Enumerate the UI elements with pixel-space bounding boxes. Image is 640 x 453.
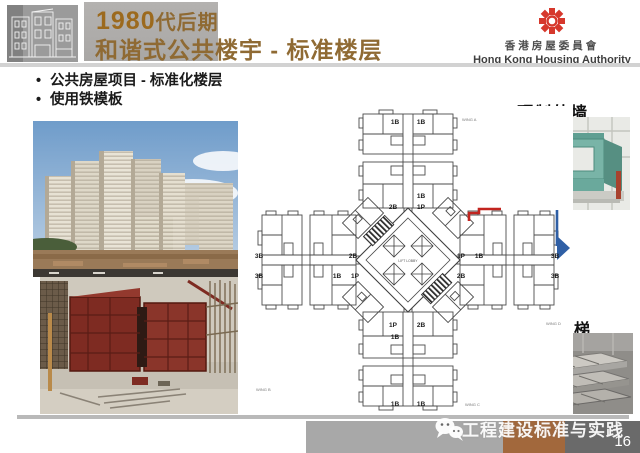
svg-text:1B: 1B [475, 253, 484, 260]
bullet-dot-icon: • [36, 72, 50, 91]
svg-text:WING D: WING D [546, 321, 561, 326]
wechat-icon [434, 416, 464, 442]
slide-title-line2: 和谐式公共楼宇 - 标准楼层 [95, 31, 382, 65]
steel-formwork-photo [40, 277, 238, 414]
svg-text:1B: 1B [391, 334, 400, 341]
page-number: 16 [565, 433, 639, 450]
svg-text:1B: 1B [417, 119, 426, 126]
bullet-item-1: •公共房屋项目 - 标准化楼层 [36, 72, 222, 91]
svg-text:3B: 3B [255, 253, 264, 260]
svg-text:1B: 1B [333, 273, 342, 280]
svg-text:2B: 2B [389, 204, 398, 211]
svg-text:1P: 1P [389, 322, 398, 329]
svg-text:2B: 2B [417, 322, 426, 329]
hkha-logo-block: 香港房屋委員會 Hong Kong Housing Authority [466, 6, 638, 66]
svg-text:1P: 1P [351, 273, 360, 280]
svg-text:1B: 1B [417, 193, 426, 200]
svg-text:1B: 1B [391, 401, 400, 408]
svg-text:2B: 2B [457, 273, 466, 280]
svg-text:1P: 1P [417, 204, 426, 211]
svg-text:WING A: WING A [462, 117, 477, 122]
svg-text:WING B: WING B [256, 387, 271, 392]
core-label: LIFT LOBBY [398, 259, 418, 263]
svg-text:3B: 3B [551, 273, 560, 280]
svg-text:WING C: WING C [465, 402, 480, 407]
svg-text:2B: 2B [349, 253, 358, 260]
bullet-text-2: 使用铁模板 [50, 92, 123, 108]
housing-estate-photo [33, 121, 238, 277]
bullet-item-2: •使用铁模板 [36, 91, 222, 110]
bullet-dot-icon: • [36, 91, 50, 110]
bullet-text-1: 公共房屋项目 - 标准化楼层 [50, 73, 222, 89]
harmony-block-floor-plan: LIFT LOBBY 1B 1B 1B 2B 1P 3B 2B 3B 1B 1P… [243, 106, 573, 414]
svg-text:1B: 1B [417, 401, 426, 408]
svg-text:1P: 1P [457, 253, 466, 260]
svg-text:3B: 3B [255, 273, 264, 280]
svg-text:1B: 1B [391, 119, 400, 126]
shophouse-sketch-image [7, 5, 78, 62]
slide: 1980代后期 和谐式公共楼宇 - 标准楼层 香港房屋委員會 Hong Kong… [0, 0, 640, 453]
bullet-list: •公共房屋项目 - 标准化楼层 •使用铁模板 [36, 72, 222, 110]
svg-text:3B: 3B [551, 253, 560, 260]
hkha-flower-icon [537, 6, 567, 36]
authority-name-zh: 香港房屋委員會 [466, 38, 638, 53]
header-divider [0, 63, 640, 67]
